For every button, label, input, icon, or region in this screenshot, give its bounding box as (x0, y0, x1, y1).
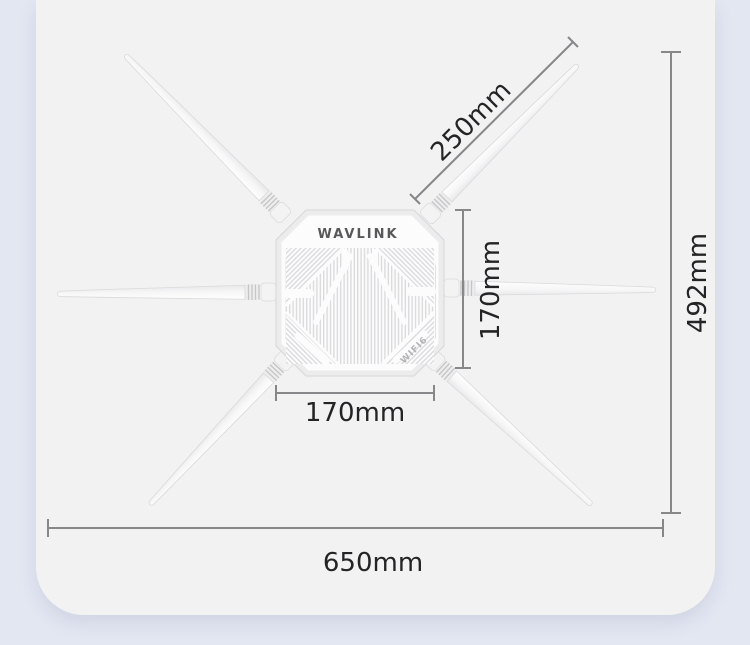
brand-logo: WAVLINK (317, 227, 398, 242)
dimension-label-total-width: 650mm (323, 548, 423, 578)
router-body: WAVLINK WIFI6 (276, 210, 444, 376)
dimension-label-250mm: 250mm (425, 75, 517, 167)
dimension-label-total-height: 492mm (683, 233, 713, 333)
antenna-bottom-right (423, 349, 598, 512)
antenna-top-left (119, 49, 292, 224)
dimension-label-body-width: 170mm (305, 398, 405, 428)
router-dimension-diagram: WAVLINK WIFI6 250mm 170mm 170mm 492mm 65… (0, 0, 750, 645)
dimension-body-height-170mm: 170mm (455, 210, 506, 368)
dimension-label-body-height: 170mm (476, 240, 506, 340)
dimension-total-width-650mm: 650mm (48, 519, 663, 578)
dimension-total-height-492mm: 492mm (661, 52, 713, 513)
dimension-antenna-250mm: 250mm (410, 37, 578, 204)
antenna-left (57, 283, 276, 303)
dimension-body-width-170mm: 170mm (276, 385, 434, 428)
antenna-bottom-left (143, 349, 296, 511)
